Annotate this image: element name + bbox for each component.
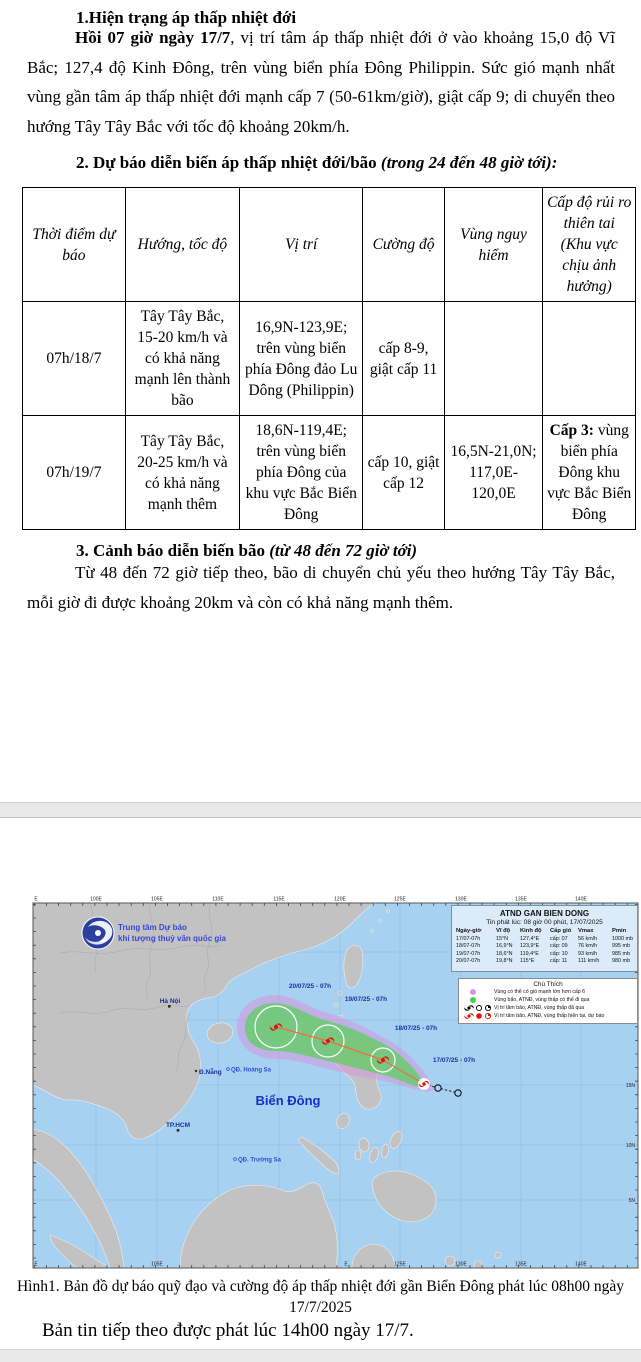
lon-label: 140E — [575, 897, 587, 903]
legend-title: Chú Thích — [459, 981, 637, 988]
info-box-title: ATND GAN BIEN DONG — [452, 909, 637, 918]
info-cell: 93 km/h — [578, 951, 612, 959]
info-cell: cấp: 10 — [550, 951, 578, 959]
lon-label: 120E — [334, 897, 346, 903]
lat-label: 15N — [626, 1083, 636, 1089]
info-cell: cấp: 11 — [550, 958, 578, 966]
info-cell: 17/07-07h — [456, 936, 496, 944]
section1-paragraph: Hồi 07 giờ ngày 17/7, vị trí tâm áp thấp… — [27, 23, 615, 141]
legend-item: Vị trí tâm bão, ATNĐ, vùng thấp hiện tại… — [459, 1012, 637, 1020]
cell-danger-zone — [444, 302, 543, 416]
lat-label: 5N — [629, 1198, 636, 1204]
info-box-table: Ngày-giờ Vĩ độ Kinh độ Cấp gió Vmax Pmin… — [456, 928, 637, 966]
info-col-vmax: Vmax — [578, 928, 612, 936]
info-cell: 76 km/h — [578, 943, 612, 951]
section1-lead: Hồi 07 giờ ngày 17/7 — [75, 28, 230, 47]
lon-label: 110E — [212, 897, 224, 903]
label-danang: Đ.Nẵng — [199, 1067, 222, 1076]
cell-time: 07h/19/7 — [23, 416, 126, 530]
col-header-danger-zone: Vùng nguy hiểm — [444, 188, 543, 302]
current-typhoon-icon — [464, 1011, 474, 1021]
cell-direction: Tây Tây Bắc, 20-25 km/h và có khả năng m… — [125, 416, 239, 530]
label-biendong: Biển Đông — [256, 1093, 321, 1108]
forecast-table-header-row: Thời điểm dự báo Hướng, tốc độ Vị trí Cư… — [23, 188, 636, 302]
cell-direction: Tây Tây Bắc, 15-20 km/h và có khả năng m… — [125, 302, 239, 416]
map-legend: Chú Thích Vùng có thể có gió mạnh lớn hơ… — [458, 978, 638, 1024]
info-cell: cấp: 09 — [550, 943, 578, 951]
agency-name-line1: Trung tâm Dự báo — [118, 923, 187, 932]
storm-track-map: Hà Nội Đ.Nẵng TP.HCM QĐ. Hoàng Sa QĐ. Tr… — [30, 893, 641, 1271]
col-header-time: Thời điểm dự báo — [23, 188, 126, 302]
label-hoangsa: QĐ. Hoàng Sa — [231, 1068, 272, 1074]
info-cell: 16,9°N — [496, 943, 520, 951]
label-hanoi: Hà Nội — [160, 998, 181, 1005]
legend-item-label: Vùng bão, ATNĐ, vùng thấp có thể đi qua — [494, 997, 589, 1003]
section2-heading-italic: (trong 24 đến 48 giờ tới): — [381, 153, 557, 172]
info-cell: 127,4°E — [520, 936, 550, 944]
forecast-clock-icon — [484, 1012, 492, 1020]
figure-caption-line1: Hình1. Bản đồ dự báo quỹ đạo và cường độ… — [17, 1278, 624, 1295]
cell-risk: Cấp 3: vùng biển phía Đông khu vực Bắc B… — [543, 416, 636, 530]
info-box-issued: Tin phát lúc: 08 giờ 00 phút, 17/07/2025 — [452, 919, 637, 926]
track-date-label: 20/07/25 - 07h — [289, 983, 331, 990]
figure-caption-line2: 17/7/2025 — [289, 1299, 352, 1316]
past-position-marker — [455, 1090, 461, 1096]
figure-caption: Hình1. Bản đồ dự báo quỹ đạo và cường độ… — [0, 1276, 641, 1318]
lon-label: 125E — [394, 897, 406, 903]
legend-item-label: Vùng có thể có gió mạnh lớn hơn cấp 6 — [494, 989, 585, 995]
info-col-date: Ngày-giờ — [456, 928, 496, 936]
info-cell: 985 mb — [612, 951, 639, 959]
cell-intensity: cấp 8-9, giật cấp 11 — [363, 302, 444, 416]
lon-label: 100E — [90, 897, 102, 903]
info-cell: 56 km/h — [578, 936, 612, 944]
label-truongsa: QĐ. Trường Sa — [238, 1158, 282, 1164]
col-header-risk: Cấp độ rủi ro thiên tai (Khu vực chịu ản… — [543, 188, 636, 302]
info-cell: 119,4°E — [520, 951, 550, 959]
forecast-table: Thời điểm dự báo Hướng, tốc độ Vị trí Cư… — [22, 187, 636, 530]
col-header-direction: Hướng, tốc độ — [125, 188, 239, 302]
page-separator-bar — [0, 802, 641, 818]
section2-heading: 2. Dự báo diễn biến áp thấp nhiệt đới/bã… — [76, 153, 557, 173]
info-cell: cấp: 07 — [550, 936, 578, 944]
track-date-label: 18/07/25 - 07h — [395, 1025, 437, 1032]
col-header-position: Vị trí — [240, 188, 363, 302]
lon-label: 135E — [515, 897, 527, 903]
info-cell: 15°N — [496, 936, 520, 944]
weather-bulletin-page: 1.Hiện trạng áp thấp nhiệt đới Hồi 07 gi… — [0, 0, 641, 1362]
info-col-lat: Vĩ độ — [496, 928, 520, 936]
current-circle-icon — [475, 1012, 483, 1020]
cell-time: 07h/18/7 — [23, 302, 126, 416]
agency-logo — [82, 917, 114, 949]
info-cell: 1000 mb — [612, 936, 639, 944]
lat-label: 10N — [626, 1143, 636, 1149]
info-col-lon: Kinh độ — [520, 928, 550, 936]
info-cell: 20/07-07h — [456, 958, 496, 966]
table-row: 07h/18/7 Tây Tây Bắc, 15-20 km/h và có k… — [23, 302, 636, 416]
col-header-intensity: Cường độ — [363, 188, 444, 302]
info-cell: 18,6°N — [496, 951, 520, 959]
cell-position: 18,6N-119,4E; trên vùng biển phía Đông c… — [240, 416, 363, 530]
legend-item-label: Vị trí tâm bão, ATNĐ, vùng thấp hiện tại… — [494, 1013, 604, 1019]
cell-danger-zone: 16,5N-21,0N; 117,0E-120,0E — [444, 416, 543, 530]
lon-label: 105E — [151, 897, 163, 903]
lon-label: 140E — [575, 1262, 587, 1268]
lon-label: E — [34, 897, 38, 903]
lon-label: 135E — [515, 1262, 527, 1268]
info-cell: 111 km/h — [578, 958, 612, 966]
storm-info-box: ATND GAN BIEN DONG Tin phát lúc: 08 giờ … — [451, 905, 638, 972]
table-row: 07h/19/7 Tây Tây Bắc, 20-25 km/h và có k… — [23, 416, 636, 530]
cell-risk — [543, 302, 636, 416]
agency-name-line2: khí tượng thuỷ văn quốc gia — [118, 934, 226, 943]
lon-label: 115E — [273, 897, 285, 903]
info-col-pmin: Pmin — [612, 928, 639, 936]
info-col-windlevel: Cấp gió — [550, 928, 578, 936]
info-cell: 19/07-07h — [456, 951, 496, 959]
page-separator-bar-bottom — [0, 1349, 641, 1362]
lon-label: 130E — [455, 897, 467, 903]
section3-paragraph: Từ 48 đến 72 giờ tiếp theo, bão di chuyể… — [27, 558, 615, 617]
cell-intensity: cấp 10, giật cấp 12 — [363, 416, 444, 530]
track-date-label: 17/07/25 - 07h — [433, 1057, 475, 1064]
info-cell: 123,9°E — [520, 943, 550, 951]
section2-heading-bold: 2. Dự báo diễn biến áp thấp nhiệt đới/bã… — [76, 153, 381, 172]
cell-position: 16,9N-123,9E; trên vùng biển phía Đông đ… — [240, 302, 363, 416]
cell-risk-label: Cấp 3: — [550, 422, 594, 439]
info-cell: 115°E — [520, 958, 550, 966]
legend-item: Vùng có thể có gió mạnh lớn hơn cấp 6 — [459, 988, 637, 996]
lon-label: 130E — [455, 1262, 467, 1268]
info-cell: 18/07-07h — [456, 943, 496, 951]
lon-label: 125E — [394, 1262, 406, 1268]
wind-area-dot-icon — [470, 989, 476, 995]
lon-label: 105E — [151, 1262, 163, 1268]
info-cell: 19,8°N — [496, 958, 520, 966]
label-hcm: TP.HCM — [166, 1122, 190, 1129]
next-bulletin-note: Bản tin tiếp theo được phát lúc 14h00 ng… — [42, 1320, 414, 1342]
legend-item-label: Vị trí tâm bão, ATNĐ, vùng thấp đã qua — [494, 1005, 584, 1011]
info-cell: 995 mb — [612, 943, 639, 951]
past-position-marker — [435, 1085, 441, 1091]
track-date-label: 19/07/25 - 07h — [345, 996, 387, 1003]
info-cell: 980 mb — [612, 958, 639, 966]
